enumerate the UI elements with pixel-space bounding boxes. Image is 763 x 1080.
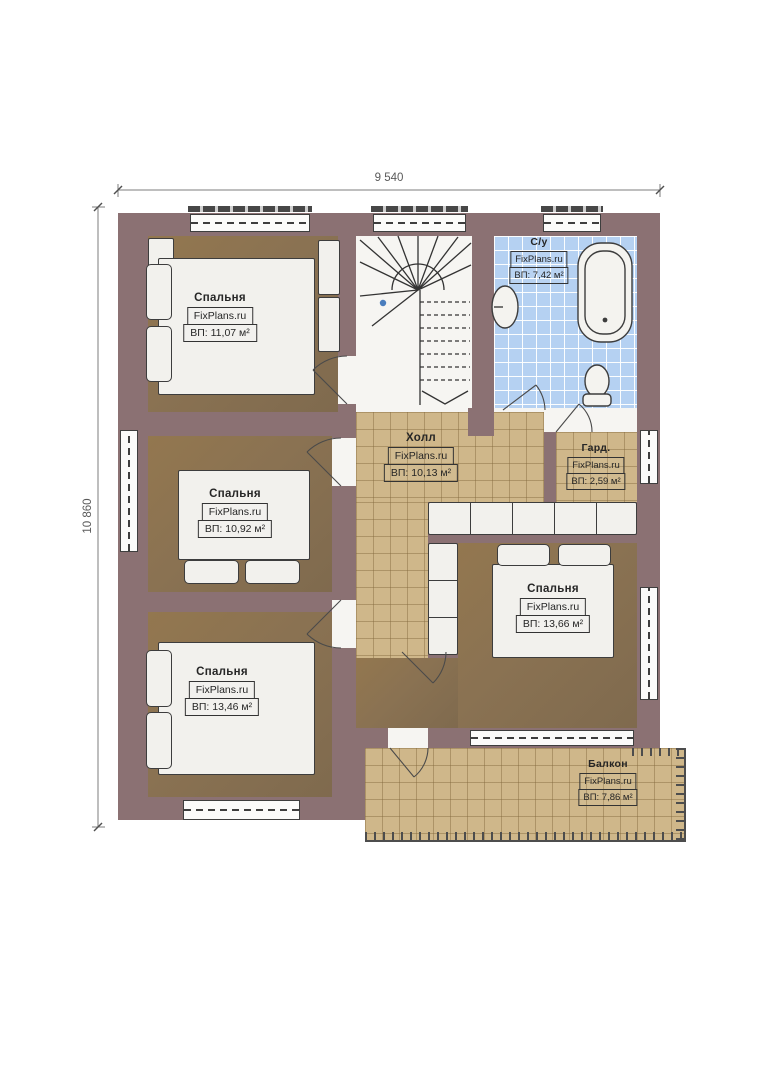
passage-floor: [356, 658, 458, 728]
balcony-deck: [365, 748, 686, 842]
door-opening-balcony: [388, 728, 428, 748]
stair-area-floor: [356, 236, 472, 412]
window-left: [120, 430, 138, 552]
room-area: ВП: 13,46 м²: [185, 698, 259, 716]
window-lintel: [541, 206, 603, 212]
brand-tag: FixPlans.ru: [187, 307, 254, 325]
room-label-bedroom-bottom-left: Спальня FixPlans.ru ВП: 13,46 м²: [185, 666, 259, 716]
closet-row: [428, 502, 637, 535]
room-label-bathroom: С/у FixPlans.ru ВП: 7,42 м²: [509, 236, 568, 284]
room-label-wardrobe: Гард. FixPlans.ru ВП: 2,59 м²: [566, 442, 625, 490]
brand-tag: FixPlans.ru: [520, 598, 587, 616]
brand-tag: FixPlans.ru: [189, 681, 256, 699]
window-top-2: [373, 214, 466, 232]
floor-plan-page: { "dimensions": { "top": "9 540", "left"…: [0, 0, 763, 1080]
balcony-railing-bottom: [365, 832, 684, 840]
hall-floor-corridor: [356, 502, 428, 658]
door-opening-bedroom-tl: [338, 356, 356, 404]
closet-column: [428, 543, 458, 655]
pillow: [146, 326, 172, 382]
balcony-railing-top: [632, 748, 684, 756]
brand-tag: FixPlans.ru: [510, 251, 568, 268]
window-lintel: [371, 206, 468, 212]
window-top-1: [190, 214, 310, 232]
window-top-3: [543, 214, 601, 232]
wall-stub-hall-wardrobe: [544, 432, 556, 502]
pillow: [184, 560, 239, 584]
room-area: ВП: 7,86 м²: [578, 789, 637, 806]
room-label-balcony: Балкон FixPlans.ru ВП: 7,86 м²: [578, 758, 637, 806]
room-area: ВП: 7,42 м²: [509, 267, 568, 284]
pillow: [245, 560, 300, 584]
room-name: Спальня: [209, 488, 261, 500]
room-label-bedroom-right: Спальня FixPlans.ru ВП: 13,66 м²: [516, 583, 590, 633]
window-balcony: [470, 730, 634, 746]
wall-band-under-closets: [428, 535, 637, 543]
room-name: Балкон: [588, 758, 628, 770]
room-area: ВП: 2,59 м²: [566, 473, 625, 490]
room-name: Спальня: [194, 292, 246, 304]
window-lintel: [188, 206, 312, 212]
brand-tag: FixPlans.ru: [567, 457, 625, 474]
door-opening-bedroom-ml: [332, 438, 356, 486]
room-name: Спальня: [196, 666, 248, 678]
brand-tag: FixPlans.ru: [388, 447, 455, 465]
room-area: ВП: 13,66 м²: [516, 615, 590, 633]
pillow: [146, 650, 172, 707]
brand-tag: FixPlans.ru: [579, 773, 637, 790]
room-label-hall: Холл FixPlans.ru ВП: 10,13 м²: [384, 432, 458, 482]
pillow: [146, 264, 172, 320]
balcony-railing-right: [676, 748, 684, 840]
dimension-width-label: 9 540: [118, 172, 660, 184]
window-right-1: [640, 430, 658, 484]
closet: [318, 240, 340, 295]
room-area: ВП: 11,07 м²: [183, 324, 257, 342]
closet: [318, 297, 340, 352]
room-name: Гард.: [582, 442, 611, 454]
window-right-2: [640, 587, 658, 700]
room-name: Спальня: [527, 583, 579, 595]
room-area: ВП: 10,92 м²: [198, 520, 272, 538]
pillow: [558, 544, 611, 566]
room-name: Холл: [406, 432, 436, 444]
room-area: ВП: 10,13 м²: [384, 464, 458, 482]
room-label-bedroom-top-left: Спальня FixPlans.ru ВП: 11,07 м²: [183, 292, 257, 342]
pillow: [497, 544, 550, 566]
brand-tag: FixPlans.ru: [202, 503, 269, 521]
window-bottom: [183, 800, 300, 820]
room-name: С/у: [530, 236, 547, 248]
room-label-bedroom-middle-left: Спальня FixPlans.ru ВП: 10,92 м²: [198, 488, 272, 538]
door-opening-bedroom-bl: [332, 600, 356, 648]
wall-stub-stair-bath: [468, 408, 494, 436]
dimension-height-label: 10 860: [82, 476, 94, 556]
pillow: [146, 712, 172, 769]
